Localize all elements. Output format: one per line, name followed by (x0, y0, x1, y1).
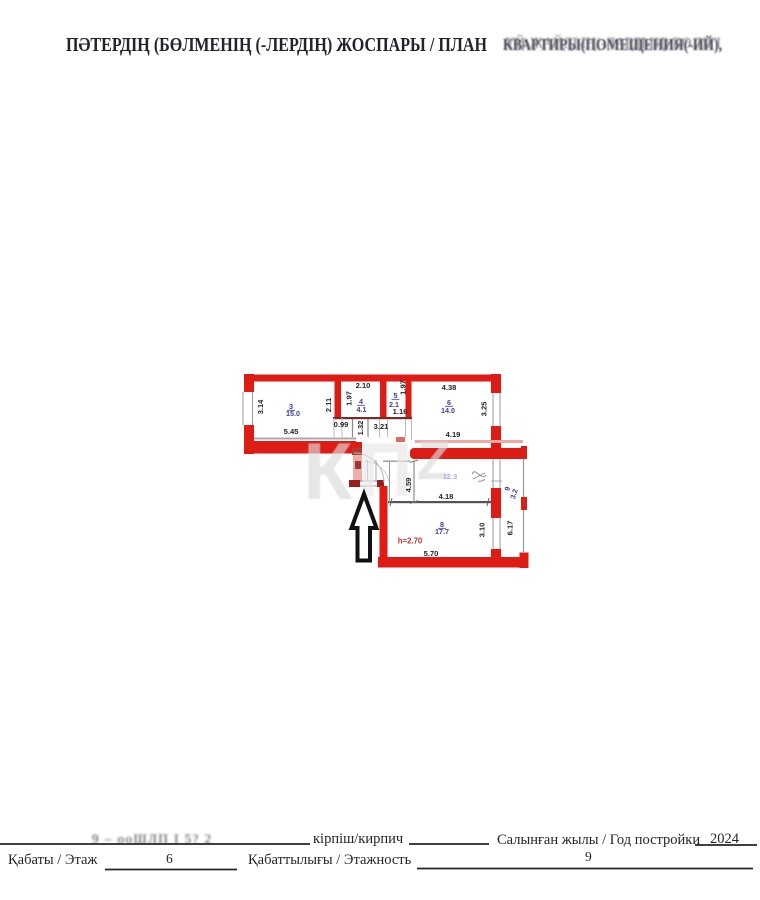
svg-text:14.0: 14.0 (441, 406, 455, 415)
svg-text:Қабаттылығы / Этажность: Қабаттылығы / Этажность (248, 852, 412, 868)
svg-text:1.16: 1.16 (393, 407, 408, 416)
svg-text:4.18: 4.18 (439, 492, 454, 501)
svg-text:15.0: 15.0 (286, 409, 300, 418)
svg-text:5.45: 5.45 (284, 427, 300, 436)
svg-text:4.19: 4.19 (446, 430, 461, 439)
svg-text:Қабаты / Этаж: Қабаты / Этаж (8, 852, 98, 868)
svg-text:ҮЙ-ЖАЙДЫҢ(-ЛАРДЫҢ) БӨЛІГІ: ҮЙ-ЖАЙДЫҢ(-ЛАРДЫҢ) БӨЛІГІ (505, 35, 721, 52)
svg-text:1.32: 1.32 (356, 421, 365, 436)
svg-text:ПӘТЕРДІҢ (БӨЛМЕНІҢ (-ЛЕРДІҢ) Ж: ПӘТЕРДІҢ (БӨЛМЕНІҢ (-ЛЕРДІҢ) ЖОСПАРЫ / П… (66, 35, 487, 56)
svg-text:12.3: 12.3 (443, 472, 457, 481)
svg-text:1.97: 1.97 (399, 380, 408, 395)
svg-text:4.59: 4.59 (404, 478, 413, 493)
svg-text:Салынған жылы / Год постройки: Салынған жылы / Год постройки (497, 832, 700, 848)
svg-text:3.2: 3.2 (508, 488, 520, 500)
svg-text:5.70: 5.70 (424, 549, 439, 558)
svg-text:3.14: 3.14 (256, 399, 265, 415)
svg-text:0.99: 0.99 (334, 420, 349, 429)
svg-text:кірпіш/кирпич: кірпіш/кирпич (313, 831, 403, 847)
svg-text:17.7: 17.7 (435, 527, 449, 536)
svg-text:1.97: 1.97 (345, 391, 354, 406)
svg-text:2024: 2024 (710, 831, 740, 847)
svg-text:h=2.70: h=2.70 (398, 537, 423, 546)
svg-text:2.11: 2.11 (324, 397, 333, 412)
svg-text:6: 6 (166, 851, 173, 866)
svg-text:4.1: 4.1 (357, 405, 367, 414)
svg-text:9: 9 (585, 849, 592, 864)
svg-text:3.25: 3.25 (480, 401, 489, 417)
svg-text:5: 5 (394, 391, 398, 400)
svg-text:2.10: 2.10 (356, 381, 371, 390)
svg-text:6.17: 6.17 (506, 521, 515, 536)
svg-text:4.38: 4.38 (442, 383, 457, 392)
svg-text:К: К (303, 427, 353, 517)
svg-text:3.21: 3.21 (374, 422, 390, 431)
svg-text:3.10: 3.10 (478, 523, 487, 538)
